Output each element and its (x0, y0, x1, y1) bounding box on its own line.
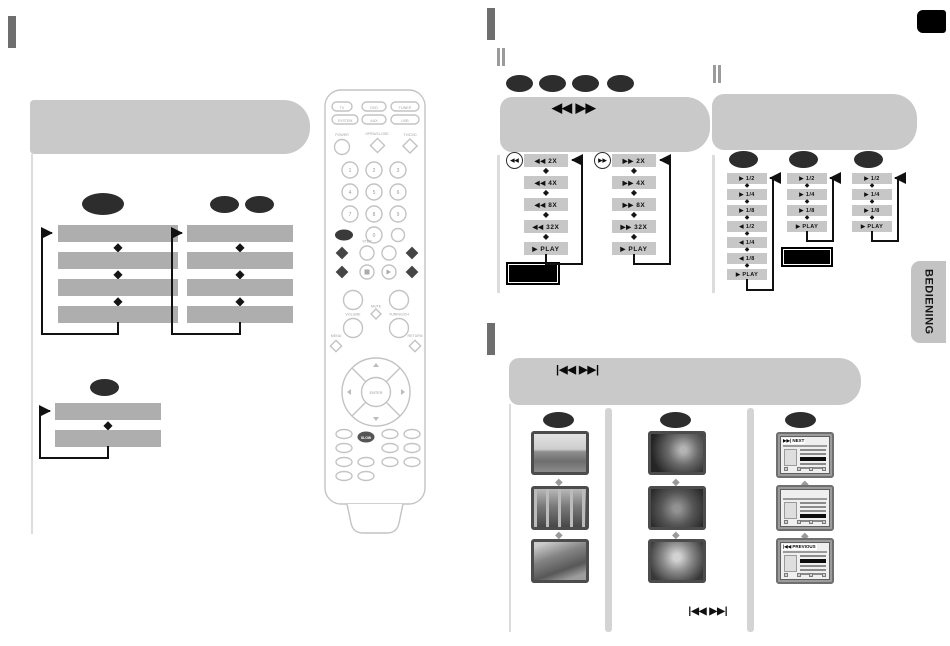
manual-page: ◆ ◆ ◆ ◆ ◆ ◆ ◆ (0, 0, 950, 646)
digit-2-label: 2 (373, 168, 376, 174)
remote-button-callout-oval (82, 193, 124, 215)
flow-diagram-a: ◆ ◆ ◆ (58, 225, 178, 323)
digit-9-label: 9 (397, 212, 400, 218)
left-panel-edge (31, 154, 33, 534)
return-label: RETURN (408, 334, 423, 338)
screen-thumbnail (531, 539, 589, 583)
remote-button-callout-oval (543, 412, 574, 428)
section-marker-skip (487, 323, 495, 355)
slow-panel-edge (712, 155, 715, 293)
subsection-marker-forward (497, 48, 505, 66)
screen-thumbnail (648, 539, 706, 583)
section-marker-search (487, 8, 495, 40)
down-arrow-icon: ◆ (612, 211, 656, 220)
menu-preview-pane (784, 502, 797, 519)
skip-icon: |◀◀ ▶▶| (556, 363, 599, 376)
menu-screen-thumbnail: |◀◀ PREVIOUS (776, 538, 834, 584)
screen-thumbnail (531, 431, 589, 475)
subsection-marker-slow (713, 65, 721, 83)
digit-6-label: 6 (397, 190, 400, 196)
highlighted-mode-button (335, 230, 353, 241)
remote-button-callout-oval (539, 75, 566, 92)
down-arrow-icon: ◆ (58, 296, 178, 306)
menu-titlebar (783, 445, 827, 447)
down-arrow-icon: ◆ (524, 167, 568, 176)
forward-flow: ▶▶ 2X ◆ ▶▶ 4X ◆ ▶▶ 8X ◆ ▶▶ 32X ◆ ▶ PLAY (612, 154, 656, 255)
screen-thumbnail (531, 486, 589, 530)
rewind-button-icon: ◀◀ (506, 152, 523, 169)
flow-diagram-c: ◆ (55, 403, 161, 447)
search-panel-edge (497, 155, 500, 293)
previous-label: |◀◀ PREVIOUS (782, 544, 817, 550)
skip-bottom-icon: |◀◀ ▶▶| (678, 606, 738, 617)
digit-5-label: 5 (373, 190, 376, 196)
remote-button-callout-oval (607, 75, 634, 92)
tuner-label: TUNER (399, 106, 412, 110)
digit-1-label: 1 (349, 168, 352, 174)
remote-button-callout-oval (785, 412, 816, 428)
digit-7-label: 7 (349, 212, 352, 218)
menu-titlebar (783, 551, 827, 553)
down-arrow-icon: ◆ (58, 242, 178, 252)
digit-4-label: 4 (349, 190, 352, 196)
menu-list (800, 555, 826, 575)
aux-label: AUX (370, 119, 378, 123)
digit-8-label: 8 (373, 212, 376, 218)
remote-button-callout-oval (572, 75, 599, 92)
forward-speed-step: ▶ PLAY (612, 242, 656, 255)
remote-button-callout-oval (854, 151, 883, 168)
remote-button-callout-oval (789, 151, 818, 168)
column-divider (747, 408, 754, 632)
flow-step-bar (55, 430, 161, 447)
remote-foot (347, 504, 403, 533)
menu-label: MENU (331, 334, 342, 338)
menu-ui (780, 489, 830, 527)
remote-button-callout-oval (506, 75, 533, 92)
system-label: SYSTEM (338, 119, 353, 123)
scene-photo (534, 434, 586, 472)
forward-button-icon: ▶▶ (594, 152, 611, 169)
scene-photo (651, 489, 703, 527)
slow-flow-2: ▶ 1/2 ◆ ▶ 1/4 ◆ ▶ 1/8 ◆ ▶ PLAY (787, 173, 827, 232)
remote-button-callout-oval (729, 151, 758, 168)
down-arrow-icon: ◆ (55, 420, 161, 430)
menu-icon-row (784, 573, 826, 577)
column-divider (605, 408, 612, 632)
scene-photo (651, 542, 703, 580)
slow-label: SLOW (361, 436, 372, 440)
side-tab-label: BEDIENING (923, 269, 935, 335)
menu-icon-row (784, 520, 826, 524)
remote-button-callout-oval (245, 196, 274, 213)
down-arrow-icon: ◆ (612, 189, 656, 198)
tv-dvd-label: TV/DVD (403, 133, 417, 137)
flow-step-bar (187, 306, 293, 323)
usb-label: USB (401, 119, 409, 123)
mute-label: MUTE (371, 305, 382, 309)
menu-preview-pane (784, 555, 797, 572)
menu-list (800, 449, 826, 469)
down-arrow-icon: ◆ (187, 269, 293, 279)
scene-photo (534, 542, 586, 580)
tv-label: TV (340, 106, 345, 110)
left-section-header (30, 100, 310, 154)
menu-screen-thumbnail (776, 485, 834, 531)
menu-list (800, 502, 826, 522)
volume-label: VOLUME (345, 313, 361, 317)
page-number-box (917, 10, 946, 33)
slow-speed-step: ▶ PLAY (727, 269, 767, 280)
down-arrow-icon: ◆ (524, 233, 568, 242)
rew-ff-icon: ◀◀ ▶▶ (552, 100, 596, 116)
step-label: STEP (362, 240, 372, 244)
search-section-header (500, 97, 710, 152)
down-arrow-icon: ◆ (187, 242, 293, 252)
open-close-label: OPEN/CLOSE (365, 132, 389, 136)
chapter-side-tab: BEDIENING (911, 261, 946, 343)
remote-button-callout-oval (90, 379, 119, 396)
menu-ui: |◀◀ PREVIOUS (780, 542, 830, 580)
skip-panel-edge (509, 404, 511, 632)
enter-label: ENTER (370, 391, 383, 395)
screen-thumbnail (648, 431, 706, 475)
down-arrow-icon: ◆ (187, 296, 293, 306)
flow-diagram-b: ◆ ◆ ◆ (187, 225, 293, 323)
slow-flow-1: ▶ 1/2 ◆ ▶ 1/4 ◆ ▶ 1/8 ◆ ◀ 1/2 ◆ ◀ 1/4 ◆ … (727, 173, 767, 280)
down-arrow-icon: ◆ (612, 233, 656, 242)
next-label: ▶▶| NEXT (782, 438, 805, 444)
menu-preview-pane (784, 449, 797, 466)
dvd-label: DVD (370, 106, 378, 110)
rewind-flow: ◀◀ 2X ◆ ◀◀ 4X ◆ ◀◀ 8X ◆ ◀◀ 32X ◆ ▶ PLAY (524, 154, 568, 255)
tuning-ch-label: TUNING/CH (389, 313, 409, 317)
scene-photo (534, 489, 586, 527)
menu-screen-thumbnail: ▶▶| NEXT (776, 432, 834, 478)
digit-0-label: 0 (373, 233, 376, 239)
rewind-speed-step: ▶ PLAY (524, 242, 568, 255)
stop-icon (365, 270, 370, 275)
note-box (506, 262, 560, 285)
slow-section-header (712, 94, 917, 150)
menu-titlebar (783, 498, 827, 500)
note-box (781, 247, 833, 267)
power-label: POWER (335, 133, 349, 137)
menu-icon-row (784, 467, 826, 471)
remote-control-illustration: TV DVD TUNER SYSTEM AUX USB POWER OPEN/C… (320, 86, 430, 538)
section-marker-left (8, 16, 16, 48)
down-arrow-icon: ◆ (524, 211, 568, 220)
scene-photo (651, 434, 703, 472)
down-arrow-icon: ◆ (524, 189, 568, 198)
remote-button-callout-oval (210, 196, 239, 213)
slow-flow-3: ▶ 1/2 ◆ ▶ 1/4 ◆ ▶ 1/8 ◆ ▶ PLAY (852, 173, 892, 232)
menu-ui: ▶▶| NEXT (780, 436, 830, 474)
screen-thumbnail (648, 486, 706, 530)
remote-button-callout-oval (660, 412, 691, 428)
slow-speed-step: ▶ PLAY (787, 221, 827, 232)
digit-3-label: 3 (397, 168, 400, 174)
slow-speed-step: ▶ PLAY (852, 221, 892, 232)
down-arrow-icon: ◆ (612, 167, 656, 176)
flow-step-bar (58, 306, 178, 323)
down-arrow-icon: ◆ (58, 269, 178, 279)
